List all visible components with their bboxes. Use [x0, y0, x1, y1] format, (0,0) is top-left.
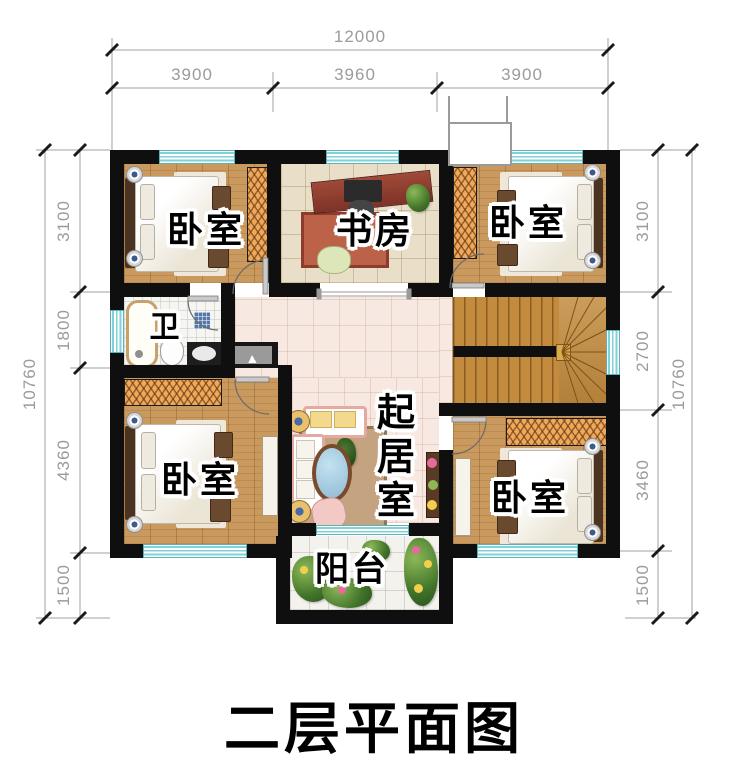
window: [606, 330, 620, 375]
bedside-lamp: [126, 166, 143, 183]
exterior-wall-left: [110, 150, 124, 558]
pillow: [577, 458, 592, 494]
interior-wall: [269, 283, 320, 297]
flue-outline: [448, 122, 512, 166]
foot-stool: [497, 244, 518, 266]
coffee-table: [312, 444, 352, 502]
floor-plan-canvas: 卧室 书房 卧室 卫 起居室 卧室 卧室 阳台 12000 3900 3960 …: [0, 0, 750, 784]
dim-left-total: 10760: [20, 350, 40, 418]
dim-left-seg-4: 1500: [54, 551, 74, 619]
dim-left-seg-2: 1800: [54, 296, 74, 364]
interior-wall: [439, 164, 453, 283]
sofa-cushion: [296, 440, 315, 459]
vanity-sink: [192, 346, 216, 361]
flue-line: [506, 96, 508, 122]
shower-mat: [194, 312, 210, 329]
dim-right-seg-3: 3460: [633, 446, 653, 514]
flower: [427, 500, 437, 510]
bedside-lamp: [584, 252, 601, 269]
dim-top-total: 12000: [320, 27, 400, 47]
dim-top-seg-1: 3900: [152, 65, 232, 85]
dim-right-seg-1: 3100: [633, 187, 653, 255]
room-label-bedroom-bottom-left: 卧室: [161, 451, 239, 503]
balcony-wall: [278, 523, 316, 536]
dim-right-seg-4: 1500: [633, 551, 653, 619]
window: [159, 150, 235, 164]
stair-landing-strip: [439, 297, 453, 403]
interior-wall: [110, 365, 235, 378]
sofa-cushion: [310, 411, 332, 428]
sofa-cushion: [296, 480, 315, 499]
bedside-lamp: [126, 412, 143, 429]
window: [326, 150, 399, 164]
pillow: [577, 184, 592, 220]
interior-wall: [110, 283, 190, 297]
interior-wall: [278, 365, 292, 544]
bedside-lamp: [126, 250, 143, 267]
interior-wall: [267, 164, 281, 283]
pillow: [141, 474, 156, 511]
interior-wall: [439, 403, 606, 416]
window: [477, 544, 578, 558]
pillow: [141, 432, 156, 469]
flue-line: [448, 96, 450, 122]
room-label-bathroom: 卫: [150, 302, 183, 346]
bedside-lamp: [584, 164, 601, 181]
bathtub-faucet: [135, 350, 143, 358]
bedside-lamp: [584, 438, 601, 455]
dim-left-seg-3: 4360: [54, 426, 74, 494]
flower: [427, 458, 437, 468]
interior-wall: [221, 283, 235, 297]
dim-left-seg-1: 3100: [54, 187, 74, 255]
flower: [300, 566, 308, 574]
wardrobe: [453, 167, 477, 259]
dresser: [455, 458, 471, 536]
room-label-bedroom-top-left: 卧室: [167, 201, 245, 253]
balcony-wall-bottom: [276, 610, 453, 624]
interior-wall: [221, 297, 235, 365]
room-label-study: 书房: [336, 202, 414, 254]
room-label-living-room: 起居室: [365, 392, 420, 524]
bedside-lamp: [126, 516, 143, 533]
wardrobe: [124, 379, 222, 406]
balcony-plant: [404, 538, 438, 606]
monitor: [344, 180, 382, 202]
washstand-highlight: [238, 347, 266, 363]
room-label-bedroom-bottom-right: 卧室: [491, 469, 569, 521]
pillow: [140, 184, 155, 220]
stair-newel-post: [556, 344, 571, 361]
dresser: [262, 436, 278, 516]
interior-wall: [485, 283, 606, 297]
dim-right-seg-2: 2700: [633, 317, 653, 385]
interior-wall: [439, 283, 453, 297]
bedside-lamp: [584, 524, 601, 541]
flower: [424, 560, 432, 568]
flower: [412, 546, 420, 554]
page-title: 二层平面图: [174, 684, 574, 765]
room-label-balcony: 阳台: [315, 542, 389, 591]
dim-right-total: 10760: [669, 350, 689, 418]
window: [507, 150, 583, 164]
stair-handrail: [453, 346, 561, 357]
dim-top-seg-2: 3960: [315, 65, 395, 85]
balcony-wall: [409, 523, 453, 536]
window: [110, 310, 124, 353]
sofa-cushion: [334, 411, 356, 428]
window: [143, 544, 247, 558]
dim-top-seg-3: 3900: [482, 65, 562, 85]
flower: [414, 584, 423, 593]
balcony-sliding-window: [316, 525, 409, 535]
room-label-bedroom-top-right: 卧室: [489, 194, 567, 246]
wardrobe: [247, 167, 269, 262]
flower: [428, 480, 438, 490]
